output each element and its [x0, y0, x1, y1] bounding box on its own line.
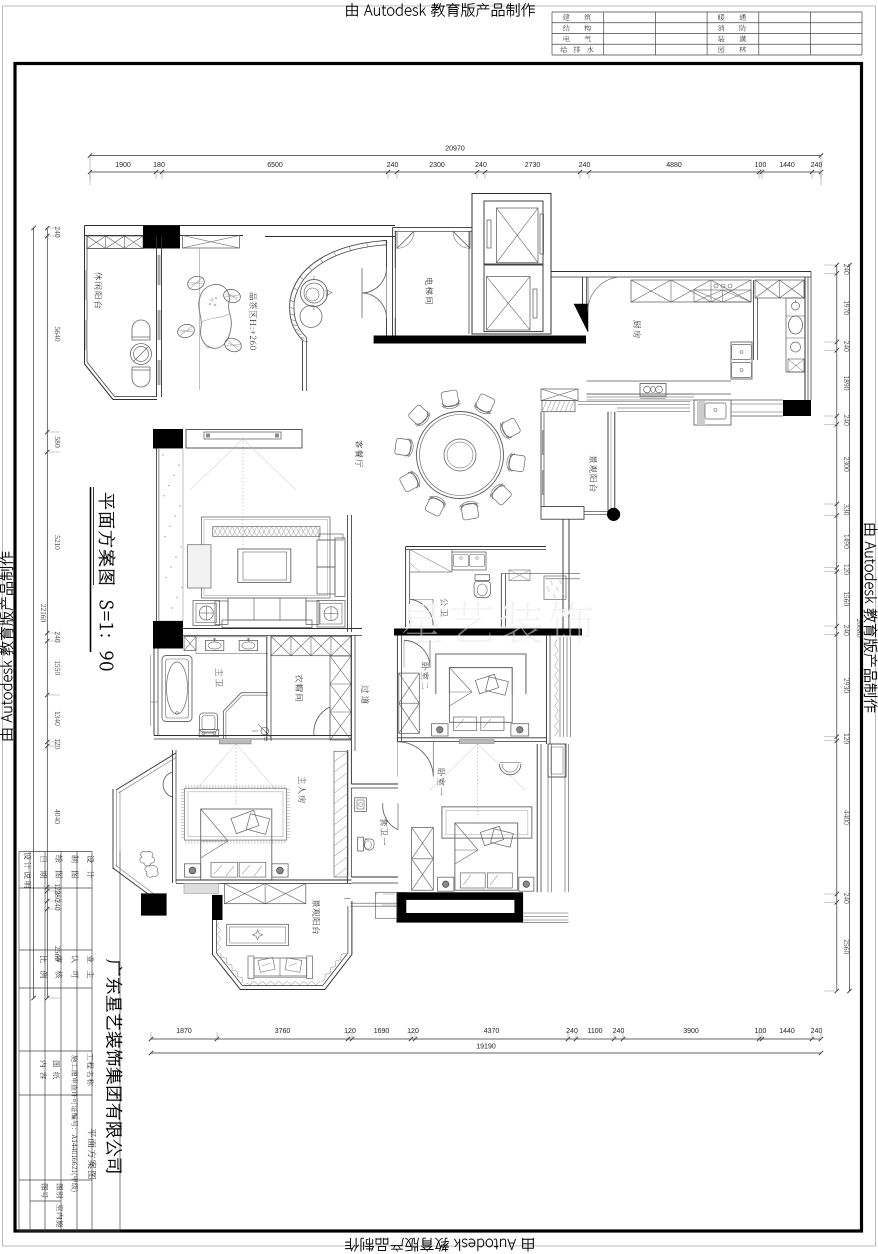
svg-text:1900: 1900	[115, 162, 131, 169]
svg-text:2730: 2730	[525, 162, 541, 169]
svg-text:120: 120	[344, 1028, 356, 1035]
svg-text:3760: 3760	[275, 1028, 291, 1035]
svg-text:120: 120	[407, 1028, 419, 1035]
svg-text:1440: 1440	[779, 1028, 795, 1035]
svg-text:100: 100	[755, 1028, 767, 1035]
svg-text:240: 240	[811, 1028, 823, 1035]
svg-text:240: 240	[475, 162, 487, 169]
svg-text:100: 100	[755, 162, 767, 169]
svg-text:240: 240	[579, 162, 591, 169]
svg-text:240: 240	[613, 1028, 625, 1035]
svg-text:4880: 4880	[666, 162, 682, 169]
svg-text:2300: 2300	[429, 162, 445, 169]
svg-text:3900: 3900	[683, 1028, 699, 1035]
svg-text:1440: 1440	[779, 162, 795, 169]
svg-text:20970: 20970	[445, 146, 465, 153]
svg-text:240: 240	[811, 162, 823, 169]
svg-text:180: 180	[153, 162, 165, 169]
svg-text:19190: 19190	[476, 1044, 496, 1051]
svg-text:4370: 4370	[484, 1028, 500, 1035]
svg-text:240: 240	[387, 162, 399, 169]
svg-text:1870: 1870	[176, 1028, 192, 1035]
svg-text:1100: 1100	[587, 1028, 602, 1035]
svg-text:6500: 6500	[267, 162, 283, 169]
svg-text:1690: 1690	[374, 1028, 390, 1035]
